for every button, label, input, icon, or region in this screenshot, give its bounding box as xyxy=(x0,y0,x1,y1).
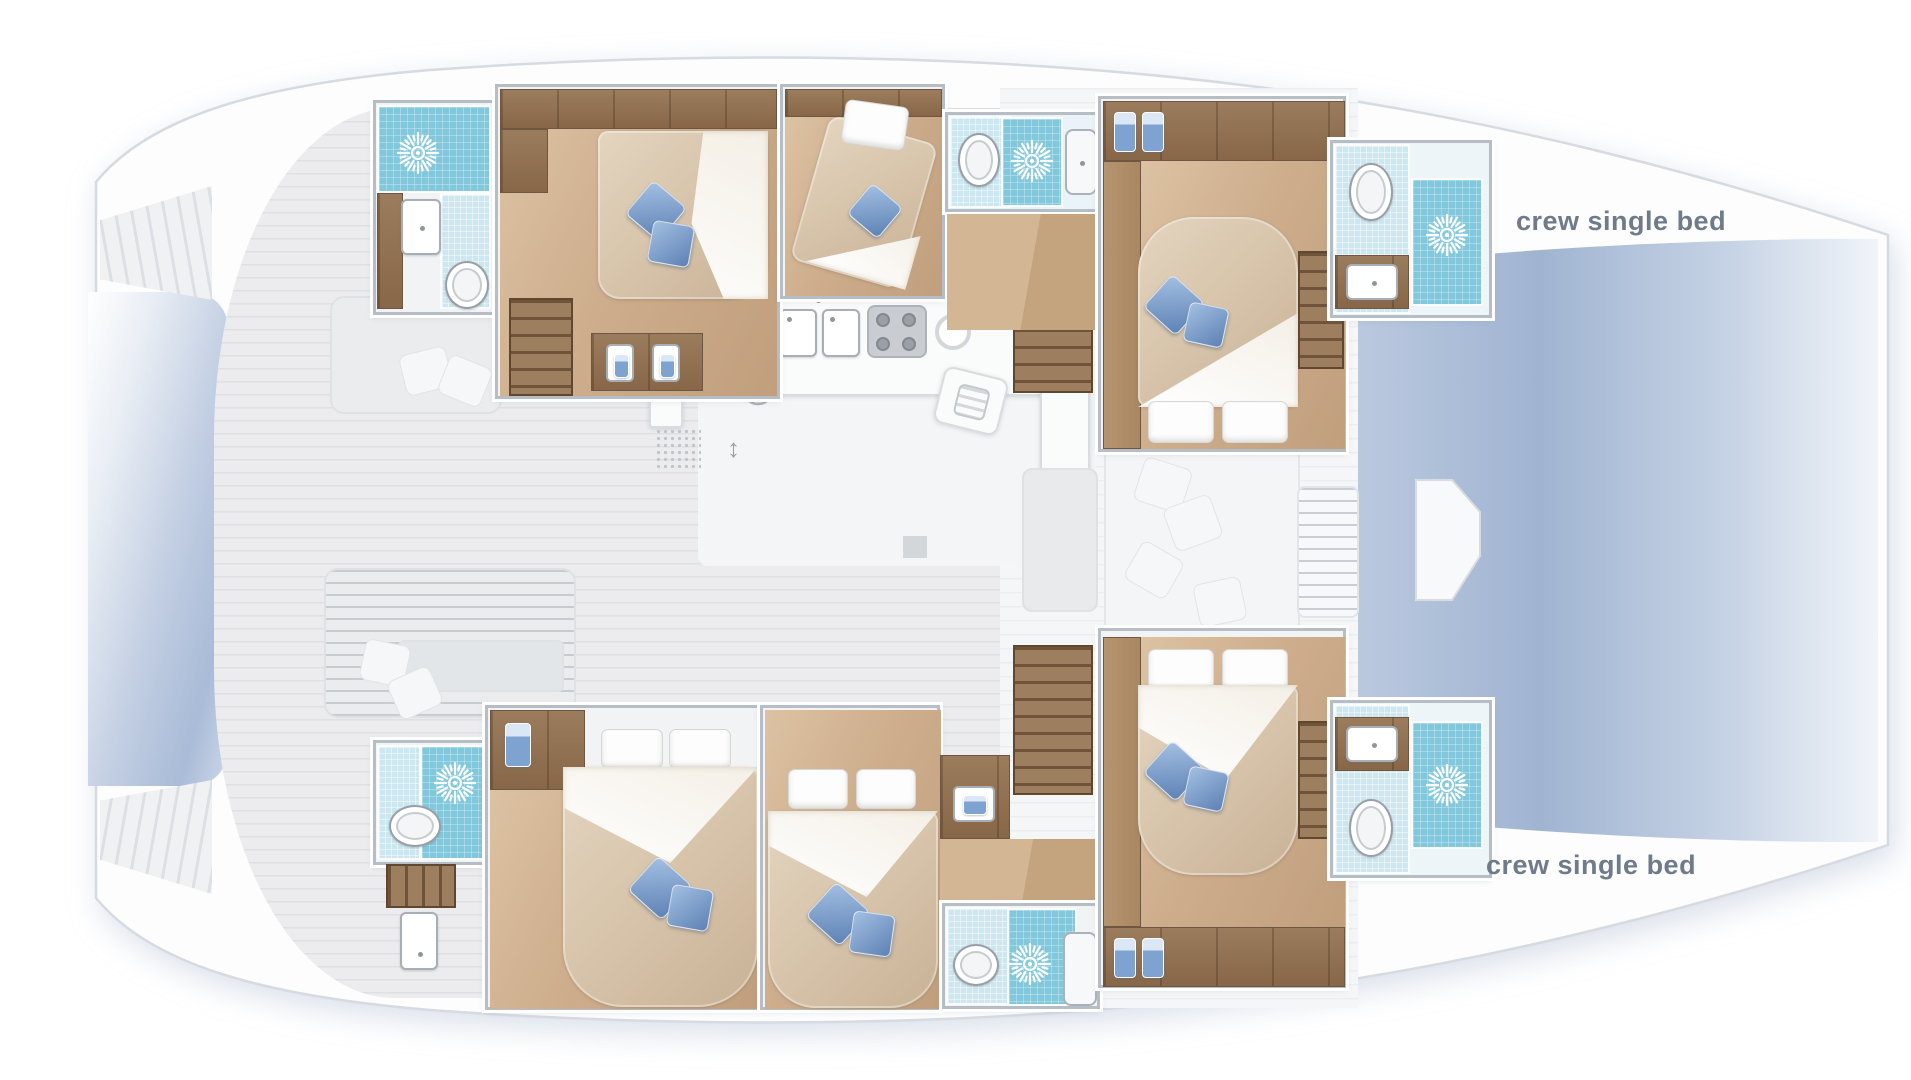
dining-table xyxy=(1022,468,1098,612)
wardrobe xyxy=(500,89,777,129)
head-top-fwd xyxy=(1330,140,1492,318)
shirt-icon xyxy=(505,723,531,767)
toilet-icon xyxy=(389,805,441,847)
stairs-saloon-starboard xyxy=(1013,645,1093,795)
cushion xyxy=(666,884,715,933)
vanity-counter xyxy=(591,333,703,391)
cabin-stairs xyxy=(509,298,573,396)
pillow xyxy=(1148,401,1214,443)
shower-icon xyxy=(1008,942,1052,986)
hull-floor-strip xyxy=(1103,637,1141,927)
head-bot-fwd xyxy=(1330,700,1492,878)
companionway-arrow-icon: ↕ xyxy=(727,430,743,466)
pillow xyxy=(856,769,916,809)
cushion xyxy=(647,220,696,269)
hull-walkway xyxy=(940,839,1098,903)
washbasin-icon xyxy=(401,199,441,255)
washbasin-icon xyxy=(652,344,680,382)
cabin-top-fwd xyxy=(1098,96,1346,452)
hull-floor-strip xyxy=(1103,161,1141,449)
cabin-top-aft xyxy=(495,84,780,399)
cabin-bot-aft xyxy=(485,705,760,1010)
bathroom-wall xyxy=(377,193,403,309)
crew-single-bed-label-bottom: crew single bed xyxy=(1486,850,1696,881)
shower-door xyxy=(1063,932,1097,1006)
stern-water xyxy=(88,292,228,786)
shower-icon xyxy=(433,761,477,805)
wardrobe xyxy=(1103,927,1345,987)
pillow xyxy=(601,729,663,769)
chart-icon xyxy=(952,383,991,422)
double-bed xyxy=(1138,639,1298,875)
head-bot-mid xyxy=(942,903,1100,1009)
floor-mat xyxy=(655,428,701,468)
double-bed xyxy=(563,715,758,1007)
crew-single-bed-label-top: crew single bed xyxy=(1516,206,1726,237)
head-top-mid xyxy=(945,112,1100,212)
vanity-bot xyxy=(940,755,1010,839)
double-bed xyxy=(598,131,768,299)
double-bed xyxy=(1138,217,1298,453)
hull-walkway xyxy=(947,214,1097,330)
wardrobe xyxy=(500,129,548,193)
stove-icon xyxy=(867,305,927,358)
galley-sink-icon xyxy=(779,309,817,357)
toilet-icon xyxy=(445,261,489,309)
wardrobe xyxy=(1103,101,1345,161)
cabin-bot-fwd xyxy=(1098,628,1346,988)
head-bot-aft xyxy=(373,740,495,865)
cabin-bot-mid xyxy=(760,705,940,1010)
toilet-icon xyxy=(1349,163,1393,221)
vanity-counter xyxy=(1335,717,1409,771)
washbasin-icon xyxy=(606,344,634,382)
shower-icon xyxy=(1425,763,1469,807)
washbasin-icon xyxy=(1346,264,1398,300)
vanity-counter xyxy=(1335,255,1409,309)
pillow xyxy=(788,769,848,809)
hatch xyxy=(903,536,927,558)
cushion xyxy=(848,910,895,957)
washbasin-icon xyxy=(400,912,438,970)
cabin-top-mid xyxy=(780,84,945,299)
toilet-icon xyxy=(953,944,999,986)
towel-icon xyxy=(1114,938,1136,978)
shower-cubicle xyxy=(1065,129,1097,195)
forward-lounge xyxy=(1104,448,1300,658)
hull-stairs xyxy=(386,864,456,908)
pillow xyxy=(669,729,731,769)
head-top-aft xyxy=(373,100,495,315)
forward-step-pad xyxy=(1297,486,1359,618)
shower-icon xyxy=(1425,213,1469,257)
cushion xyxy=(1182,301,1229,348)
toilet-icon xyxy=(1349,799,1393,857)
pillow xyxy=(840,99,910,151)
towel-icon xyxy=(1142,938,1164,978)
towel-icon xyxy=(1114,112,1136,152)
pillow xyxy=(1222,401,1288,443)
washbasin-icon xyxy=(1346,726,1398,762)
washbasin-icon xyxy=(953,786,995,822)
shower-icon xyxy=(1010,139,1054,183)
towel-icon xyxy=(1142,112,1164,152)
toilet-icon xyxy=(958,133,1000,187)
catamaran-floor-plan: ↕ xyxy=(0,0,1911,1080)
galley-sink-icon xyxy=(822,309,860,357)
shower-icon xyxy=(396,131,440,175)
cushion xyxy=(1182,765,1229,812)
double-bed xyxy=(768,763,938,1008)
